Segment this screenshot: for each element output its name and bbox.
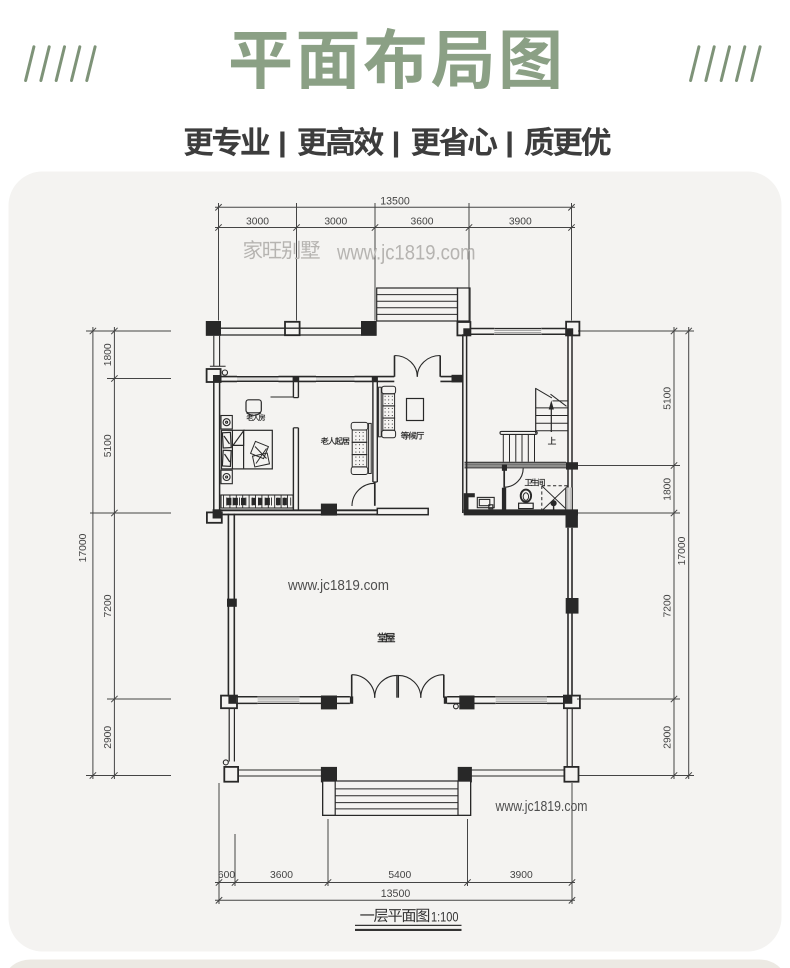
svg-text:600: 600 — [218, 870, 235, 881]
svg-text:17000: 17000 — [677, 536, 688, 565]
svg-text:5400: 5400 — [388, 870, 411, 881]
svg-text:1:100: 1:100 — [431, 909, 459, 924]
svg-text:3000: 3000 — [324, 216, 347, 227]
svg-text:3600: 3600 — [411, 216, 434, 227]
svg-text:www.jc1819.com: www.jc1819.com — [287, 577, 389, 594]
svg-text:13500: 13500 — [380, 195, 410, 207]
svg-text:13500: 13500 — [381, 888, 411, 900]
svg-text:5100: 5100 — [663, 387, 674, 410]
svg-text:17000: 17000 — [78, 533, 89, 562]
svg-text:www.jc1819.com: www.jc1819.com — [336, 241, 475, 264]
svg-text:1800: 1800 — [663, 478, 674, 501]
svg-text:7200: 7200 — [103, 594, 114, 617]
svg-text:2900: 2900 — [103, 726, 114, 749]
svg-text:5100: 5100 — [103, 434, 114, 457]
svg-text:3900: 3900 — [510, 870, 533, 881]
svg-text:3600: 3600 — [270, 870, 293, 881]
svg-text:1800: 1800 — [103, 343, 114, 366]
svg-text:2900: 2900 — [663, 726, 674, 749]
svg-text:3900: 3900 — [509, 216, 532, 227]
svg-text:www.jc1819.com: www.jc1819.com — [495, 798, 588, 815]
svg-text:3000: 3000 — [246, 216, 269, 227]
svg-text:7200: 7200 — [663, 594, 674, 617]
